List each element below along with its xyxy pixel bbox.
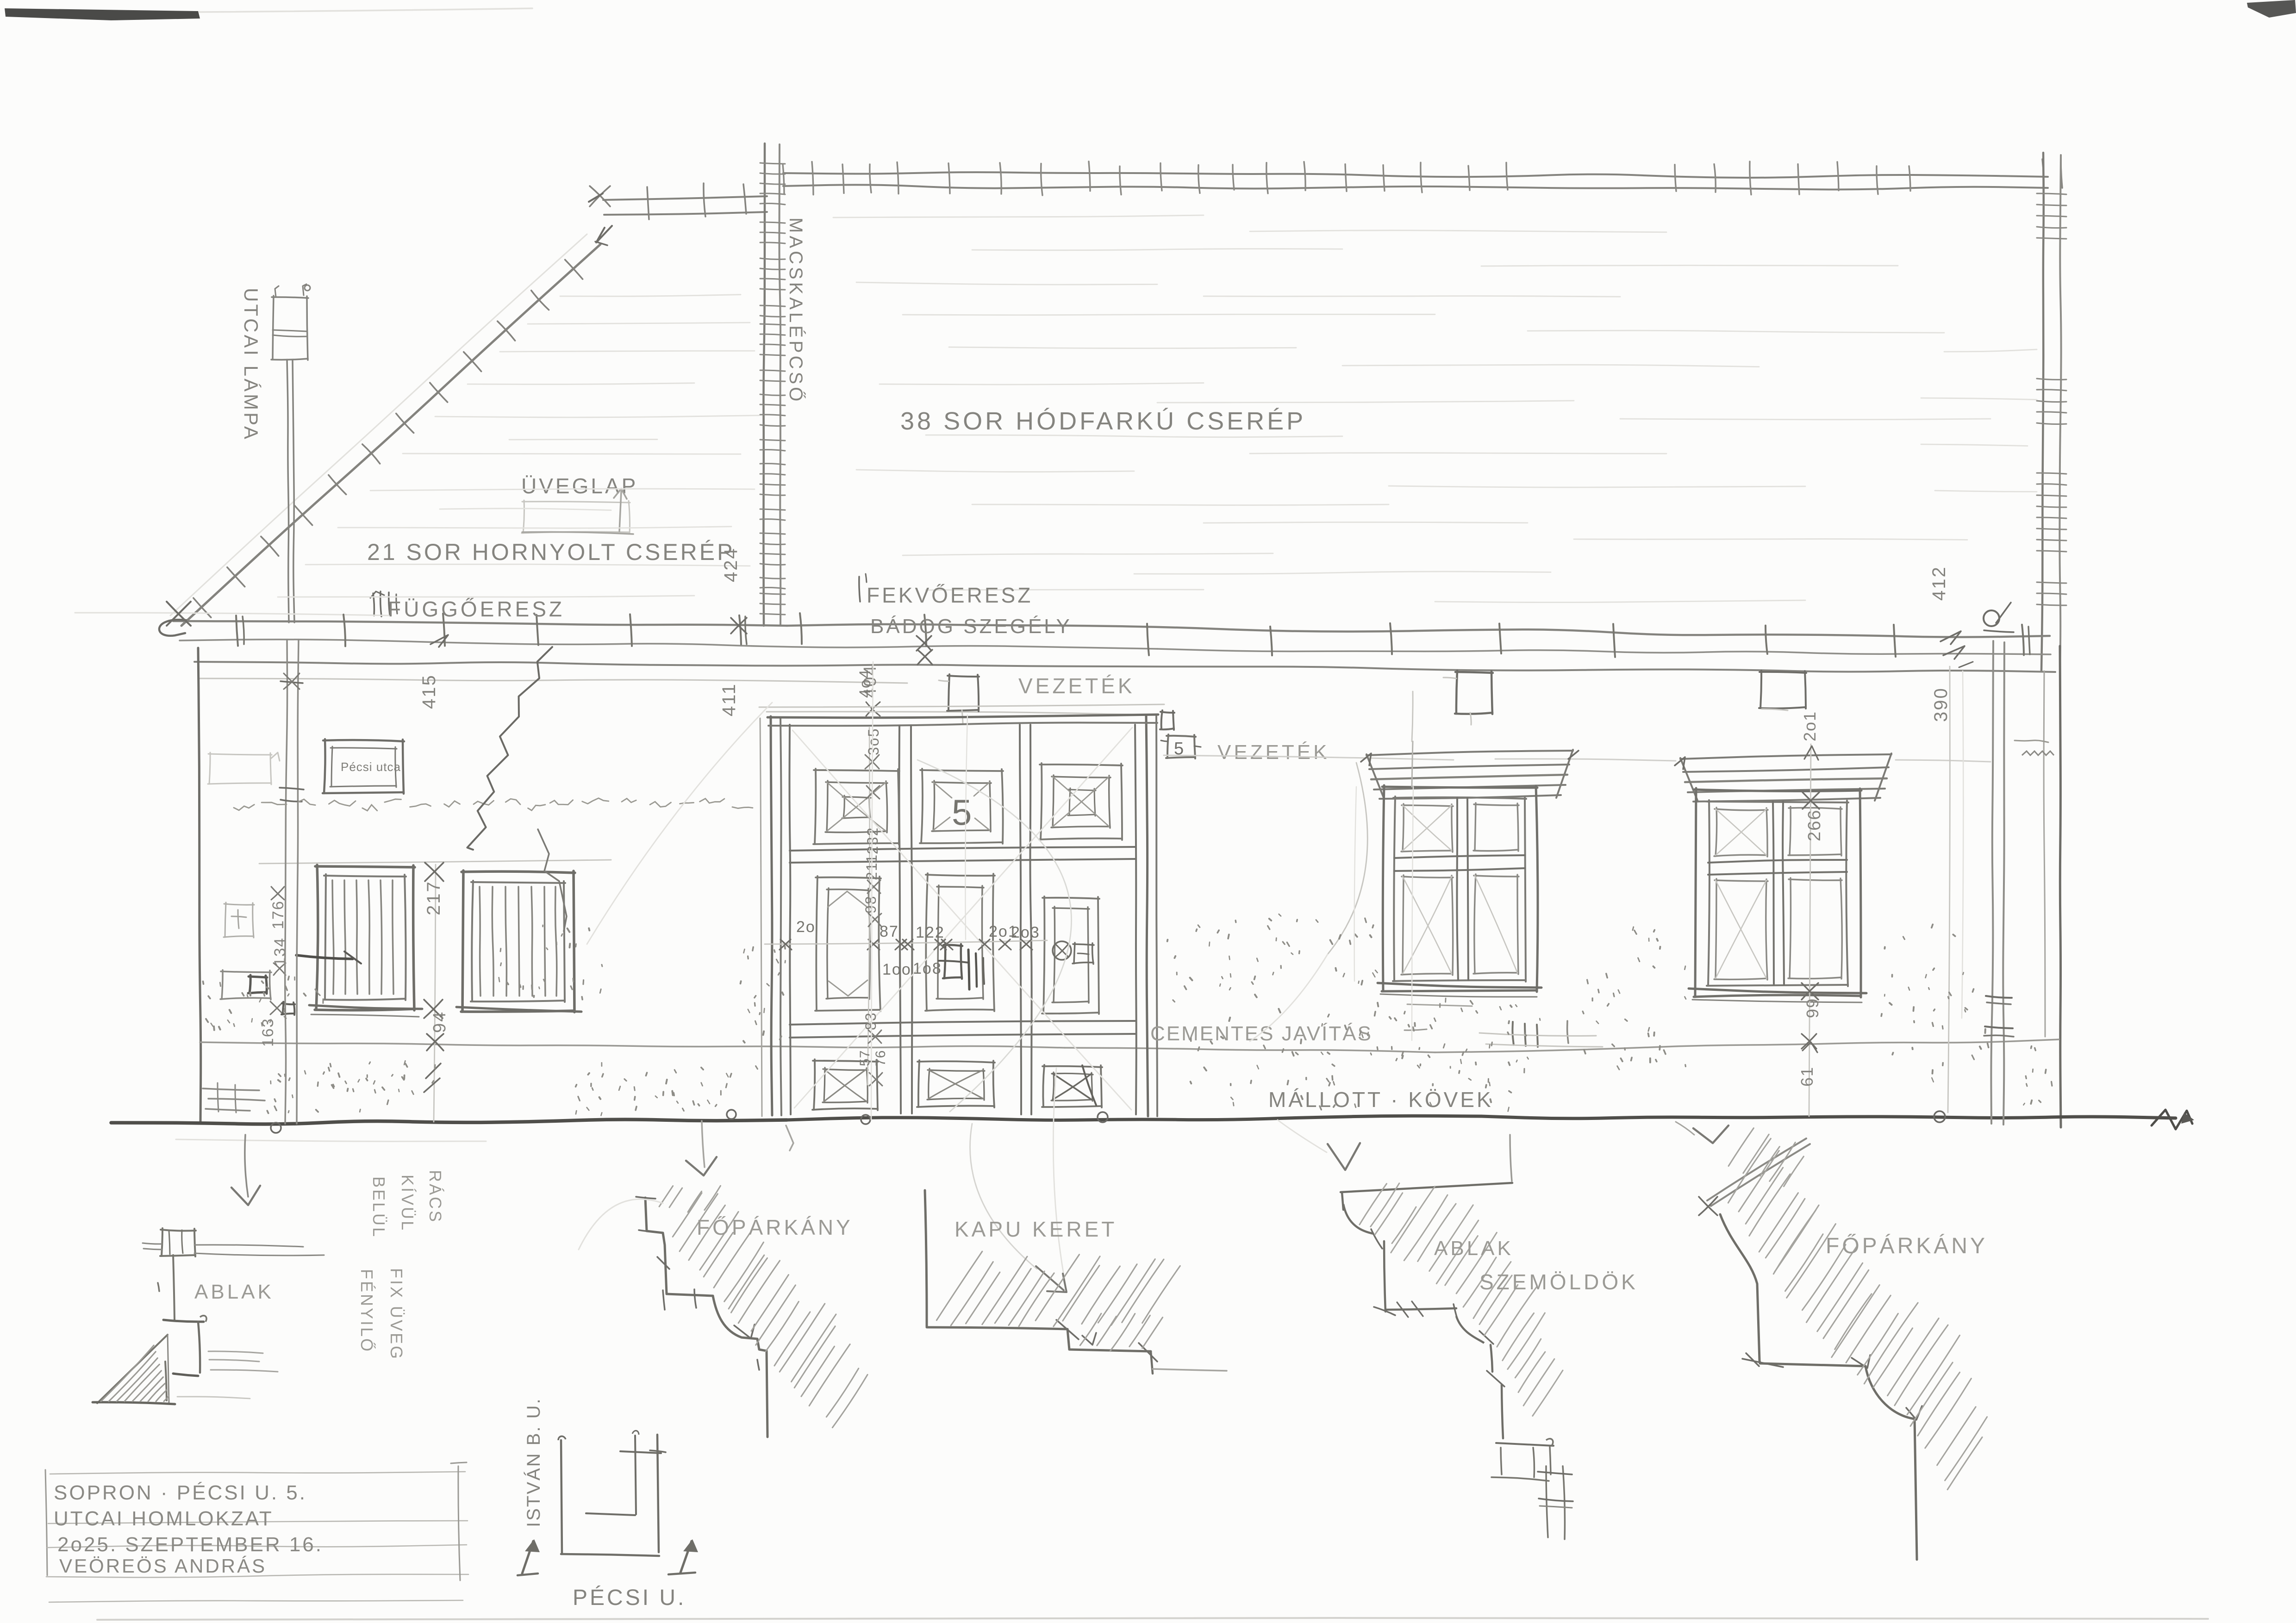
svg-text:VEZETÉK: VEZETÉK [1217,741,1330,764]
svg-text:424: 424 [721,547,741,582]
svg-text:57: 57 [857,1050,873,1066]
svg-text:412: 412 [1929,566,1949,601]
svg-text:38 SOR HÓDFARKÚ CSERÉP: 38 SOR HÓDFARKÚ CSERÉP [900,407,1306,435]
svg-text:SZEMÖLDÖK: SZEMÖLDÖK [1479,1270,1638,1294]
svg-text:232: 232 [864,827,881,854]
svg-text:SOPRON · PÉCSI U. 5.: SOPRON · PÉCSI U. 5. [54,1481,307,1504]
svg-text:21 SOR HORNYOLT CSERÉP: 21 SOR HORNYOLT CSERÉP [367,539,735,565]
svg-text:87: 87 [880,923,899,940]
svg-text:2o3: 2o3 [1011,924,1040,941]
svg-text:2o25. SZEPTEMBER 16.: 2o25. SZEPTEMBER 16. [57,1533,323,1556]
svg-text:FÜGGŐERESZ: FÜGGŐERESZ [388,597,565,621]
svg-text:415: 415 [419,674,439,709]
svg-text:390: 390 [1931,687,1951,722]
svg-text:2o: 2o [796,918,816,936]
svg-text:99: 99 [1803,998,1822,1018]
svg-text:ISTVÁN B. U.: ISTVÁN B. U. [523,1398,544,1528]
svg-text:UTCAI LÁMPA: UTCAI LÁMPA [240,288,262,442]
svg-text:FŐPÁRKÁNY: FŐPÁRKÁNY [1826,1234,1988,1258]
svg-text:122: 122 [916,924,945,941]
svg-text:2o1: 2o1 [1800,711,1819,741]
svg-text:1o8: 1o8 [913,960,942,977]
svg-text:MACSKALÉPCSŐ: MACSKALÉPCSŐ [786,218,806,404]
svg-text:76: 76 [873,1050,888,1066]
svg-text:KÍVÜL: KÍVÜL [398,1175,417,1232]
svg-text:FŐPÁRKÁNY: FŐPÁRKÁNY [697,1215,853,1239]
svg-text:FEKVŐERESZ: FEKVŐERESZ [867,583,1033,607]
svg-text:176: 176 [269,900,287,929]
svg-text:BÁDOG SZEGÉLY: BÁDOG SZEGÉLY [870,615,1072,638]
svg-text:FÉNYILŐ: FÉNYILŐ [357,1269,376,1353]
svg-text:266: 266 [1805,809,1824,841]
svg-text:217: 217 [424,880,444,915]
svg-text:94: 94 [430,1011,449,1033]
svg-text:VEÖREÖS ANDRÁS: VEÖREÖS ANDRÁS [59,1555,267,1577]
svg-text:134: 134 [271,937,289,966]
svg-text:3o5: 3o5 [865,728,882,755]
svg-text:83: 83 [862,1012,879,1030]
svg-text:5: 5 [952,792,972,833]
svg-text:RÁCS: RÁCS [426,1170,445,1224]
svg-text:163: 163 [259,1018,277,1047]
svg-text:Pécsi utca: Pécsi utca [341,760,401,774]
svg-text:ABLAK: ABLAK [194,1281,274,1303]
svg-text:UTCAI HOMLOKZAT: UTCAI HOMLOKZAT [54,1507,274,1530]
svg-text:ABLAK: ABLAK [1434,1237,1514,1260]
svg-text:BELÜL: BELÜL [369,1176,388,1238]
svg-text:4o4: 4o4 [856,669,874,698]
svg-text:98: 98 [862,895,879,914]
svg-text:61: 61 [1797,1066,1816,1087]
svg-text:411: 411 [719,683,739,716]
svg-text:PÉCSI U.: PÉCSI U. [573,1586,686,1610]
svg-text:KAPU KERET: KAPU KERET [955,1217,1117,1241]
svg-text:VEZETÉK: VEZETÉK [1018,674,1135,698]
svg-text:FIX ÜVEG: FIX ÜVEG [387,1268,406,1361]
svg-text:1oo: 1oo [882,961,911,978]
